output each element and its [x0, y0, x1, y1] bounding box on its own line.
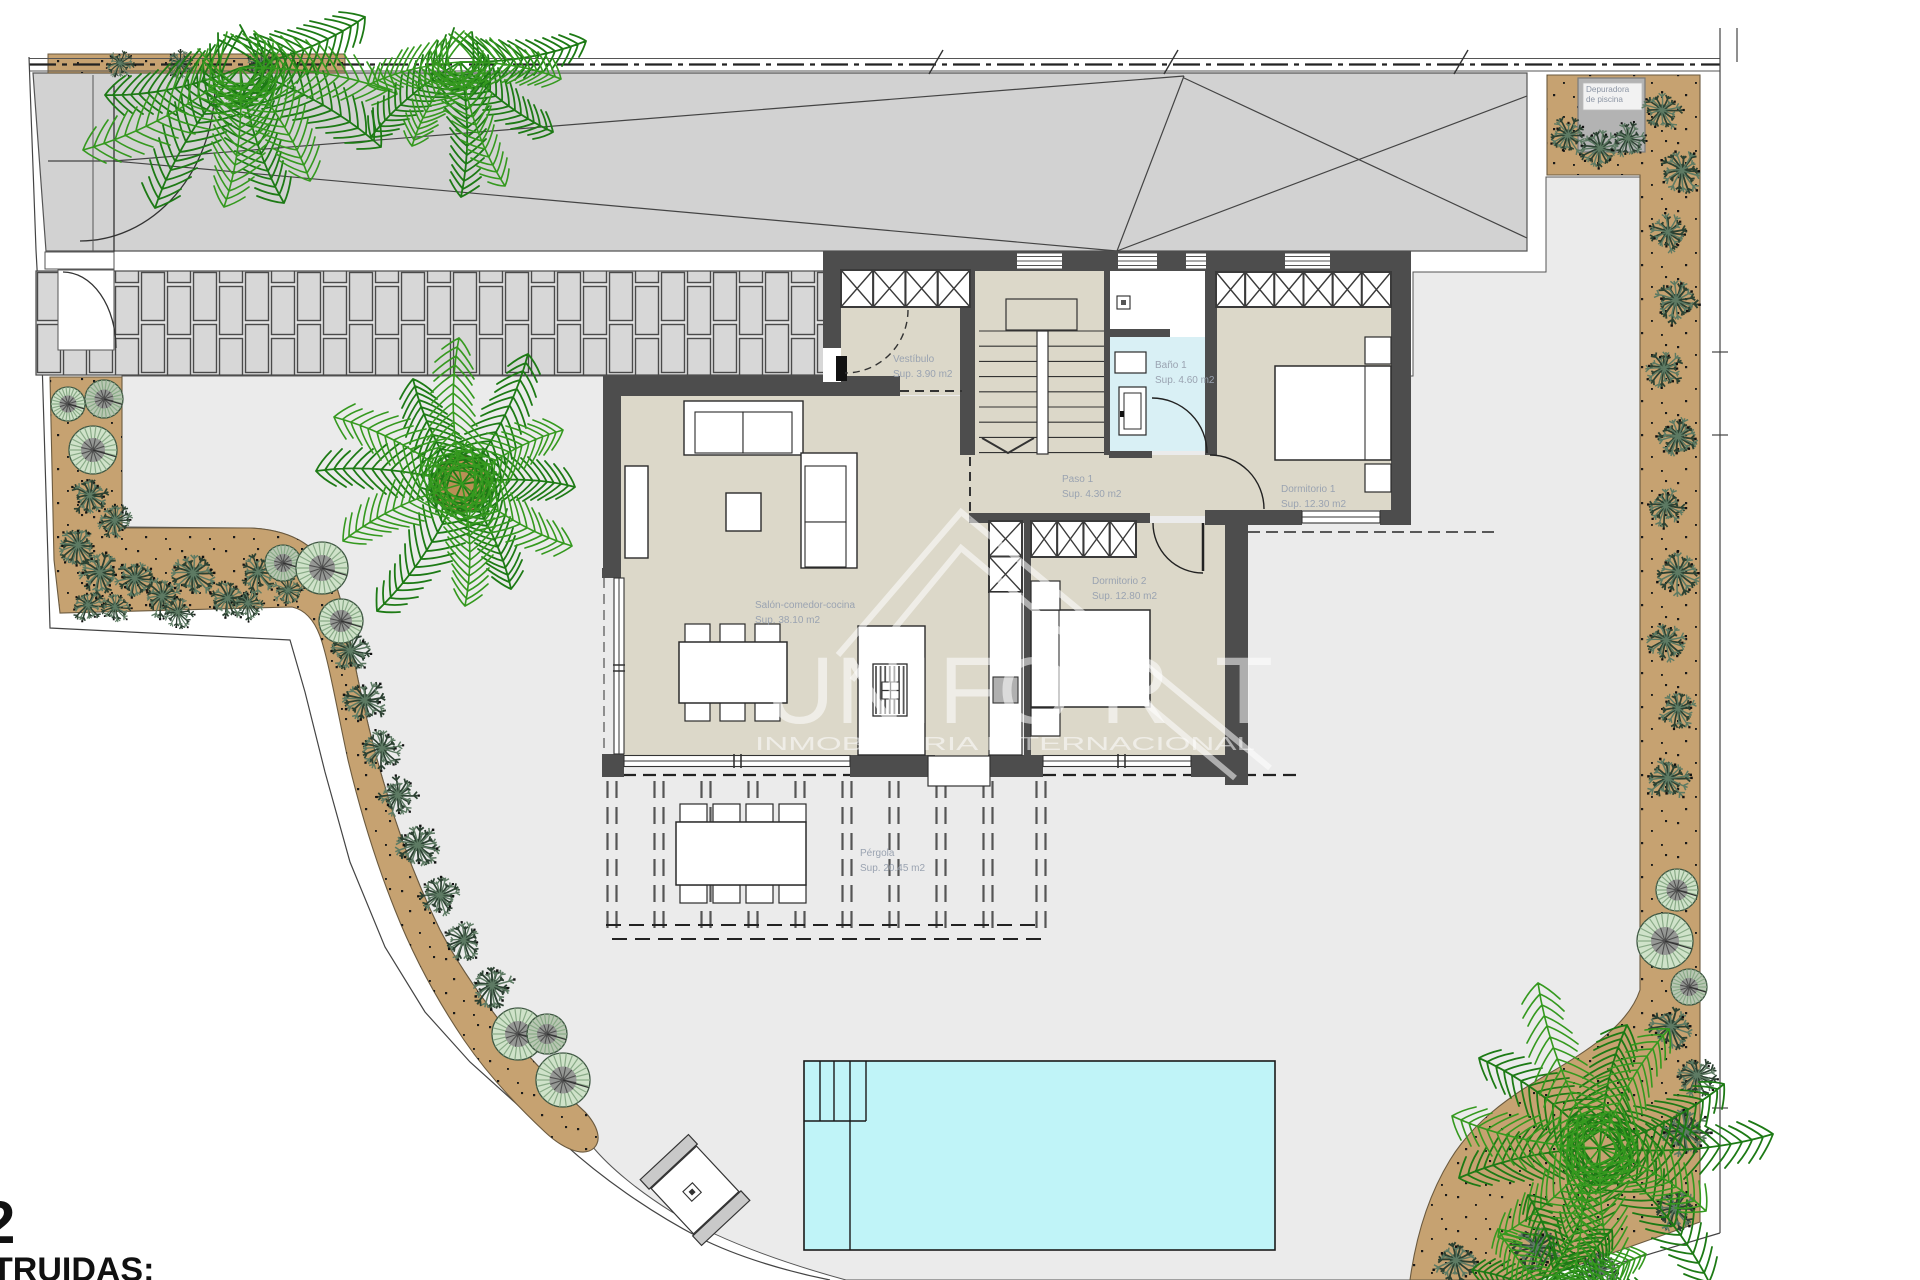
svg-text:Dormitorio 2: Dormitorio 2: [1092, 576, 1147, 587]
svg-text:Salón-comedor-cocina: Salón-comedor-cocina: [755, 600, 855, 611]
svg-text:Baño 1: Baño 1: [1155, 360, 1187, 371]
svg-text:Sup. 4.60 m2: Sup. 4.60 m2: [1155, 375, 1215, 386]
svg-text:Depuradora: Depuradora: [1586, 85, 1630, 94]
svg-text:TRUIDAS:: TRUIDAS:: [0, 1251, 154, 1280]
svg-text:2: 2: [0, 1189, 15, 1256]
svg-text:INMOBILIARIA INTERNACIONAL: INMOBILIARIA INTERNACIONAL: [755, 733, 1255, 754]
svg-text:Sup. 3.90 m2: Sup. 3.90 m2: [893, 369, 953, 380]
svg-text:O: O: [998, 638, 1072, 744]
svg-text:Sup. 4.30 m2: Sup. 4.30 m2: [1062, 489, 1122, 500]
svg-text:T: T: [1215, 638, 1273, 744]
svg-text:Sup. 12.30 m2: Sup. 12.30 m2: [1281, 499, 1346, 510]
svg-text:F: F: [939, 638, 997, 744]
svg-text:Sup. 12.80 m2: Sup. 12.80 m2: [1092, 591, 1157, 602]
svg-text:Vestíbulo: Vestíbulo: [893, 354, 935, 365]
svg-text:Sup. 38.10 m2: Sup. 38.10 m2: [755, 615, 820, 626]
svg-text:Pérgola: Pérgola: [860, 848, 895, 859]
svg-text:I: I: [907, 638, 933, 744]
svg-text:Paso 1: Paso 1: [1062, 474, 1094, 485]
svg-text:U: U: [766, 638, 835, 744]
svg-text:de piscina: de piscina: [1586, 95, 1623, 104]
svg-text:Sup. 20.45 m2: Sup. 20.45 m2: [860, 863, 925, 874]
svg-text:R: R: [1101, 638, 1170, 744]
svg-text:Dormitorio 1: Dormitorio 1: [1281, 484, 1336, 495]
svg-text:N: N: [836, 638, 905, 744]
